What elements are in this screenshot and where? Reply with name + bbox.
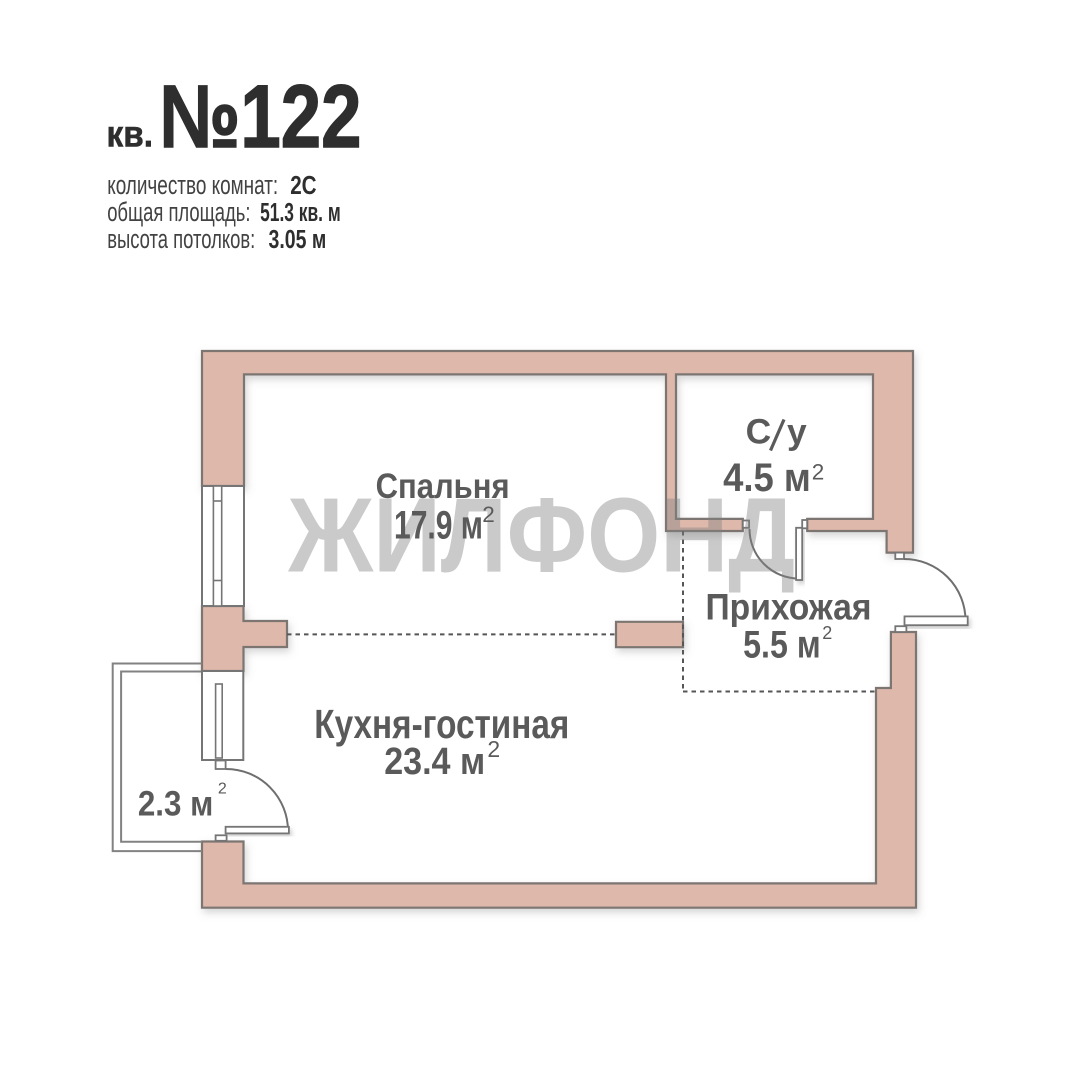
svg-text:2: 2 [218, 781, 227, 798]
svg-text:23.4 м: 23.4 м [384, 741, 485, 783]
svg-text:Спальня: Спальня [376, 466, 510, 506]
svg-text:С: С [746, 412, 772, 452]
svg-text:2.3 м: 2.3 м [138, 783, 214, 823]
svg-text:Прихожая: Прихожая [706, 585, 872, 627]
svg-text:кв.: кв. [107, 114, 154, 155]
svg-text:2: 2 [812, 460, 825, 485]
svg-text:2: 2 [482, 502, 495, 527]
svg-text:5.5 м: 5.5 м [743, 623, 821, 666]
svg-text:2: 2 [487, 736, 500, 762]
svg-text:2С: 2С [290, 172, 316, 200]
svg-text:количество комнат:: количество комнат: [107, 170, 278, 200]
svg-text:51.3 кв. м: 51.3 кв. м [260, 199, 341, 227]
svg-text:4.5 м: 4.5 м [723, 456, 811, 500]
svg-text:17.9 м: 17.9 м [394, 504, 483, 548]
svg-text:3.05 м: 3.05 м [269, 226, 327, 254]
svg-text:№122: №122 [160, 66, 362, 166]
svg-text:общая площадь:: общая площадь: [107, 197, 250, 227]
svg-text:у: у [787, 412, 807, 452]
svg-text:ЖИЛФОНД: ЖИЛФОНД [287, 477, 795, 595]
svg-text:высота потолков:: высота потолков: [107, 224, 255, 254]
svg-text:2: 2 [822, 623, 832, 643]
